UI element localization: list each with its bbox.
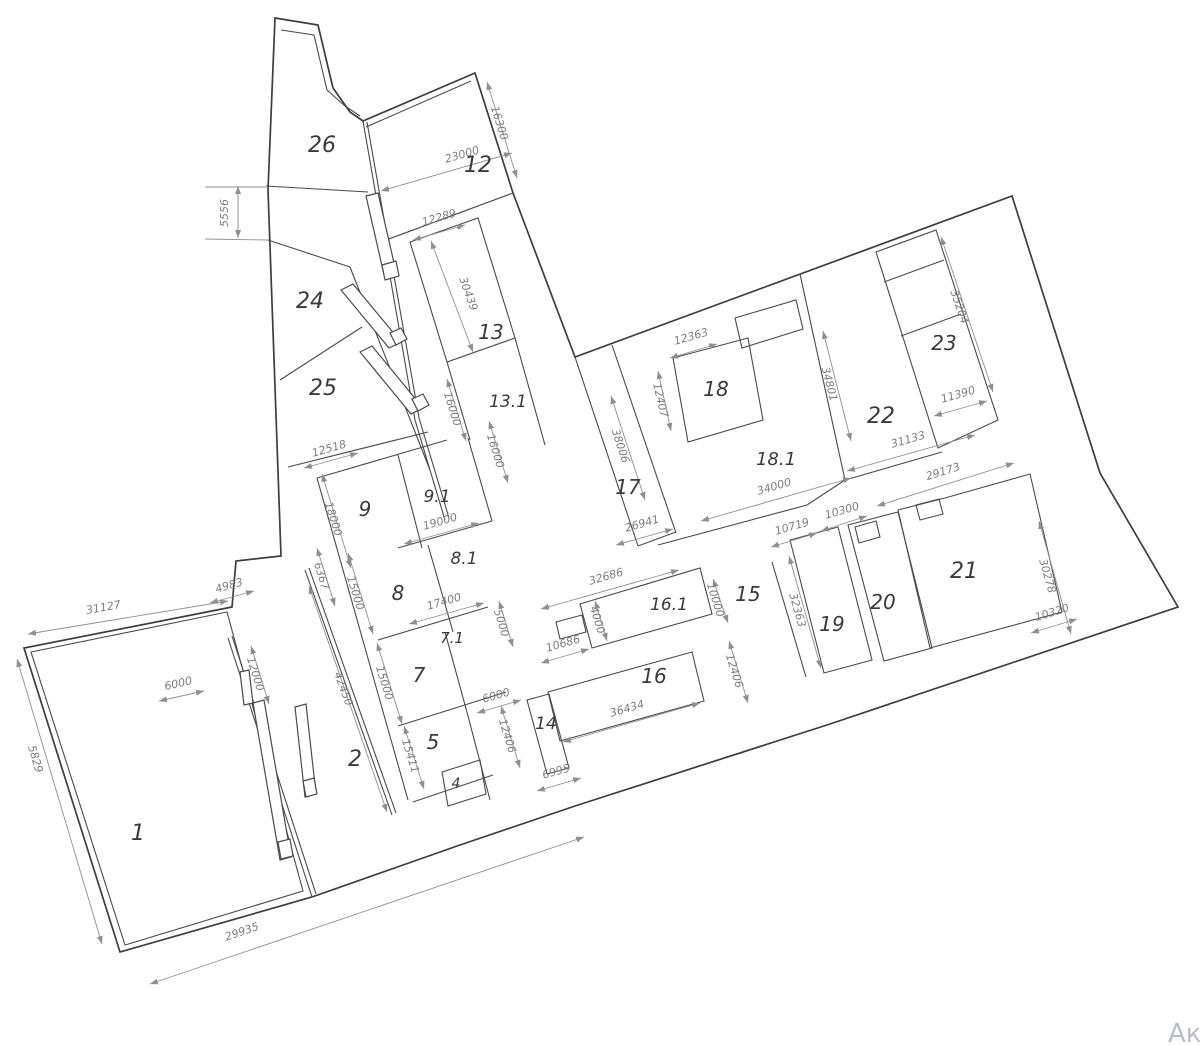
zone-number-label: 9 bbox=[359, 497, 372, 521]
dimension-value: 36434 bbox=[608, 698, 645, 720]
dimension-value: 26941 bbox=[623, 513, 660, 535]
zone-number-label: 18 bbox=[703, 377, 728, 401]
zone24-25-divider bbox=[280, 327, 362, 380]
zone-number-label: 7 bbox=[413, 663, 426, 687]
dimension-value: 35204 bbox=[947, 288, 971, 325]
zone-number-label: 13 bbox=[478, 320, 503, 344]
zone-number-label: 16 bbox=[641, 664, 666, 688]
dimension-value: 16000 bbox=[484, 432, 507, 469]
dimension-annotations: 1630023000122893043955561251818000160001… bbox=[17, 82, 1077, 984]
dimension-value: 31127 bbox=[85, 598, 122, 617]
zone4-outline bbox=[442, 760, 486, 806]
zone-number-label: 18.1 bbox=[756, 449, 796, 470]
dimension-value: 12407 bbox=[650, 382, 671, 419]
dimension-value: 15411 bbox=[399, 737, 422, 774]
building-strip-25 bbox=[360, 346, 423, 414]
dimension-value: 11390 bbox=[939, 384, 976, 406]
witness-5556-bottom bbox=[205, 239, 268, 240]
dimension-value: 32686 bbox=[587, 566, 624, 588]
dimension-value: 5000 bbox=[491, 608, 512, 639]
dimension-value: 29935 bbox=[223, 920, 260, 944]
dimension-value: 10000 bbox=[704, 581, 727, 618]
dimension-value: 6000 bbox=[163, 674, 193, 693]
dimension-value: 10686 bbox=[544, 633, 581, 655]
site-boundary bbox=[24, 18, 1178, 952]
zone5-right bbox=[468, 716, 490, 800]
witness-lines bbox=[205, 187, 268, 240]
boundary-lines bbox=[24, 18, 1178, 952]
dimension-line bbox=[616, 529, 673, 545]
zone-number-label: 16.1 bbox=[650, 595, 688, 615]
zone-number-label: 21 bbox=[950, 559, 978, 584]
zone-number-label: 7.1 bbox=[440, 629, 464, 647]
building-strip-top-cap bbox=[382, 261, 399, 280]
zone-number-label: 17 bbox=[615, 475, 641, 499]
dimension-value: 29173 bbox=[924, 460, 961, 483]
zone-number-label: 13.1 bbox=[489, 392, 527, 412]
zone17-bottom bbox=[638, 532, 676, 546]
dimension-value: 5829 bbox=[25, 744, 46, 775]
dimension-value: 38006 bbox=[609, 427, 632, 464]
dimension-value: 6000 bbox=[481, 686, 511, 706]
zone-number-label: 12 bbox=[464, 153, 492, 178]
zone20-outline bbox=[848, 512, 932, 661]
zone-number-label: 9.1 bbox=[423, 487, 450, 507]
zone-number-label: 25 bbox=[309, 376, 337, 401]
zone9-91-divider bbox=[398, 455, 422, 548]
dimension-value: 12406 bbox=[723, 652, 746, 689]
zone26-bottom bbox=[266, 186, 368, 192]
zone-number-label: 22 bbox=[867, 404, 895, 429]
zone-number-label: 14 bbox=[535, 714, 557, 734]
dimension-value: 30439 bbox=[456, 275, 480, 312]
watermark-text: Ак bbox=[1168, 1019, 1200, 1045]
zone19-outline bbox=[790, 527, 872, 673]
building-strip-2b-cap bbox=[278, 839, 293, 859]
dimension-value: 34000 bbox=[755, 476, 792, 498]
zone-number-label: 1 bbox=[131, 821, 145, 846]
dimension-value: 12363 bbox=[672, 326, 709, 348]
dimension-value: 30278 bbox=[1036, 557, 1058, 594]
dimension-value: 12406 bbox=[496, 717, 519, 754]
site-plan-page: 1630023000122893043955561251818000160001… bbox=[0, 0, 1200, 1045]
zone16-outline bbox=[548, 652, 704, 741]
dimension-value: 4000 bbox=[587, 605, 608, 636]
zone24-top bbox=[268, 240, 350, 267]
dimension-value: 10320 bbox=[1033, 601, 1070, 624]
dimension-value: 34801 bbox=[819, 366, 841, 403]
zone12-top-inner bbox=[366, 81, 471, 127]
zone18-1-bottom-2 bbox=[807, 480, 845, 505]
zone-number-label: 23 bbox=[931, 331, 956, 355]
dimension-line bbox=[17, 659, 102, 944]
dimension-value: 19000 bbox=[421, 511, 458, 533]
dimension-value: 15000 bbox=[344, 574, 367, 611]
zone-number-label: 24 bbox=[296, 289, 324, 314]
building-strip-2b bbox=[253, 700, 291, 860]
dimension-value: 12289 bbox=[420, 207, 457, 229]
dimension-value: 4983 bbox=[214, 576, 244, 596]
dimension-value: 10719 bbox=[773, 516, 810, 538]
dimension-line bbox=[150, 837, 584, 984]
zone-number-label: 8 bbox=[392, 581, 405, 605]
zone25-bottom bbox=[288, 432, 428, 467]
zone8-bottom bbox=[378, 607, 488, 640]
dimension-value: 31133 bbox=[889, 429, 926, 451]
building-strip-24 bbox=[341, 284, 401, 348]
plot1-inner-fence bbox=[31, 612, 303, 945]
dimension-value: 6995 bbox=[541, 762, 571, 782]
dimension-value: 10300 bbox=[823, 500, 860, 522]
zone-number-label: 8.1 bbox=[450, 549, 477, 569]
dimension-value: 15000 bbox=[373, 664, 396, 701]
zone-number-label: 15 bbox=[735, 582, 760, 606]
zone-number-label: 19 bbox=[819, 612, 844, 636]
site-plan-drawing: 1630023000122893043955561251818000160001… bbox=[0, 0, 1200, 1045]
dimension-value: 17400 bbox=[425, 591, 462, 613]
zone-number-label: 26 bbox=[308, 133, 336, 158]
zone-number-label: 4 bbox=[452, 776, 461, 792]
dimension-value: 6367 bbox=[311, 561, 332, 592]
zone-number-label: 2 bbox=[348, 747, 362, 772]
boundary-inner-spike bbox=[281, 30, 360, 116]
zone23-divider-1 bbox=[884, 260, 944, 282]
zone20-notch bbox=[855, 521, 880, 543]
dimension-value: 5556 bbox=[218, 199, 231, 227]
building-strip-2c-cap bbox=[303, 778, 317, 797]
zone-number-label: 20 bbox=[870, 590, 895, 614]
zone18-step bbox=[735, 300, 803, 348]
zone-number-label: 5 bbox=[427, 730, 440, 754]
dimension-value: 18000 bbox=[322, 500, 345, 537]
